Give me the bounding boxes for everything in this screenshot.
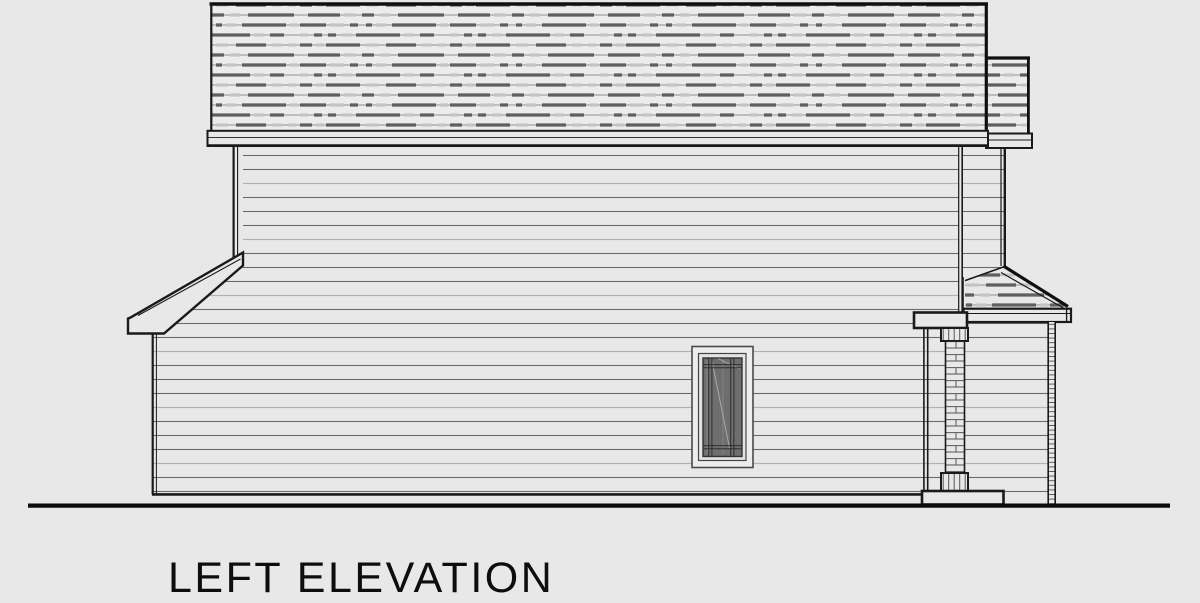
main-roof-shingles: [211, 4, 987, 131]
porch-fascia: [964, 309, 1072, 322]
main-wall-siding-texture: [130, 146, 960, 496]
secondary-roof-shingles: [988, 58, 1029, 134]
drawing-title: LEFT ELEVATION: [168, 554, 554, 603]
pier-base: [941, 473, 968, 491]
main-wall: [130, 146, 963, 496]
glass-streak: [722, 360, 724, 454]
concrete-step: [922, 491, 1004, 505]
secondary-roof-fascia: [986, 134, 1032, 149]
pier-brick-shaft: [946, 341, 965, 473]
elevation-drawing-sheet: LEFT ELEVATION: [0, 0, 1200, 600]
secondary-roof: [986, 57, 1032, 148]
elevation-drawing: [0, 0, 1200, 600]
porch-back-wall-siding: [963, 322, 1048, 504]
casement-window: [692, 347, 753, 468]
pier-cap: [941, 328, 968, 341]
porch-back-wall: [963, 322, 1048, 504]
main-eave-fascia: [208, 131, 989, 146]
bumpout-siding-texture: [963, 146, 1006, 277]
main-roof: [210, 3, 989, 135]
fascia-board: [208, 131, 989, 146]
porch-post-right-hatch: [1048, 322, 1056, 504]
rear-bumpout-wall: [963, 146, 1006, 277]
porch-beam: [914, 313, 967, 329]
